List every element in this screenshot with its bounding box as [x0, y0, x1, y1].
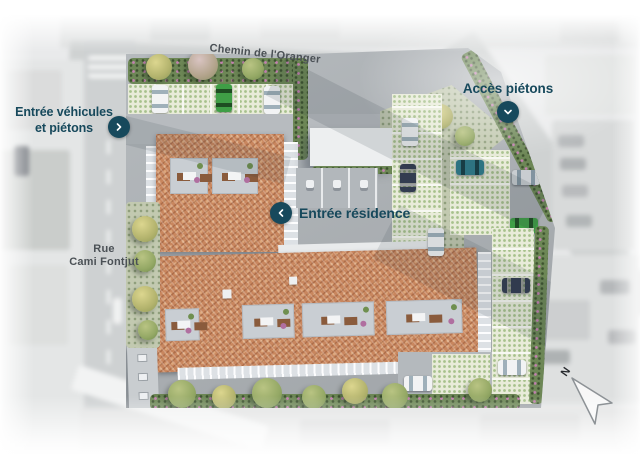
residence-entrance-button[interactable] — [270, 202, 292, 224]
vehicle-entrance-line2: et piétons — [12, 121, 116, 137]
car — [152, 85, 168, 113]
chevron-down-icon — [502, 106, 514, 118]
car — [404, 376, 432, 391]
roof-terrace — [165, 308, 200, 341]
parking-pictogram — [360, 180, 368, 191]
vehicle-entrance-line1: Entrée véhicules — [12, 105, 116, 121]
fade-top — [0, 0, 640, 52]
tree — [132, 286, 158, 312]
pedestrian-access-label: Accès piétons — [446, 81, 570, 96]
roof-terrace — [302, 301, 375, 337]
roof-hatch — [222, 289, 231, 298]
annex-door — [138, 373, 148, 381]
vehicle-entrance-label: Entrée véhicules et piétons — [12, 105, 116, 136]
tree — [138, 320, 158, 340]
parking-pictogram — [333, 180, 341, 191]
street-label-line2: Cami Fontjut — [64, 256, 144, 269]
pedestrian-access-button[interactable] — [497, 101, 519, 123]
annex-door — [137, 354, 147, 362]
roof-terrace — [386, 299, 463, 335]
vehicle-entrance-button[interactable] — [108, 116, 130, 138]
residence-entrance-label: Entrée résidence — [299, 205, 419, 221]
tree — [242, 58, 264, 80]
roof-terrace — [242, 304, 295, 339]
parking-pictogram — [306, 180, 314, 191]
street-label-line1: Rue — [64, 243, 144, 256]
tree — [146, 54, 172, 80]
fade-left — [0, 0, 34, 470]
chevron-left-icon — [275, 207, 287, 219]
car — [498, 360, 526, 375]
car — [216, 84, 232, 112]
chevron-right-icon — [113, 121, 125, 133]
tree — [132, 216, 158, 242]
roof-hatch — [289, 277, 297, 285]
site-plan-screenshot: Chemin de l'Oranger Rue Cami Fontjut Ent… — [0, 0, 640, 470]
fade-bottom — [0, 396, 640, 470]
street-label-rue-cami-fontjut: Rue Cami Fontjut — [64, 243, 144, 268]
